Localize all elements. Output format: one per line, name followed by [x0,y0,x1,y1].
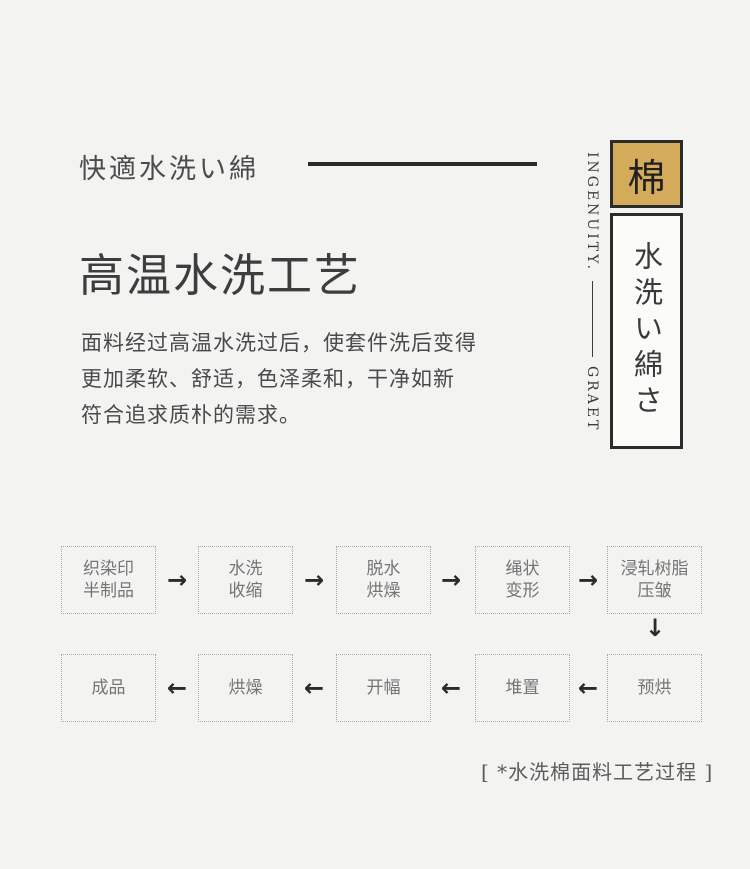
vertical-title: 水洗い綿さ [626,241,668,421]
flow-step-line: 浸轧树脂 [621,558,689,580]
flow-step-dry: 烘燥 [198,654,293,722]
description-paragraph: 面料经过高温水洗过后，使套件洗后变得 更加柔软、舒适，色泽柔和，干净如新 符合追… [81,325,477,433]
flow-step-line: 烘燥 [229,677,263,699]
flow-step-dehydrate-dry: 脱水 烘燥 [336,546,431,614]
section-title: 高温水洗工艺 [79,239,361,304]
ingenuity-label: INGENUITY. [584,152,600,272]
flow-step-line: 半制品 [83,580,134,602]
flow-step-line: 变形 [506,580,540,602]
description-line: 更加柔软、舒适，色泽柔和，干净如新 [81,361,477,397]
flow-step-open-width: 开幅 [336,654,431,722]
subtitle-japanese: 快適水洗い綿 [79,147,259,186]
flow-step-line: 成品 [92,677,126,699]
flow-step-line: 收缩 [229,580,263,602]
flow-arrow-right-4: → [575,566,601,594]
description-line: 符合追求质朴的需求。 [81,397,477,433]
flow-step-line: 脱水 [367,558,401,580]
flow-step-line: 水洗 [229,558,263,580]
description-line: 面料经过高温水洗过后，使套件洗后变得 [81,325,477,361]
separator-line [592,281,593,357]
flow-step-line: 绳状 [506,558,540,580]
flow-step-line: 烘燥 [367,580,401,602]
product-description-section: 快適水洗い綿 高温水洗工艺 面料经过高温水洗过后，使套件洗后变得 更加柔软、舒适… [0,0,750,869]
flow-arrow-left-1: ← [164,674,190,702]
flow-step-resin-press: 浸轧树脂 压皱 [607,546,702,614]
side-vertical-caption: INGENUITY. GRAET [578,152,606,432]
flow-step-wash-shrink: 水洗 收缩 [198,546,293,614]
cotton-badge: 棉 [610,140,683,208]
graet-label: GRAET [584,366,600,432]
flow-arrow-right-2: → [301,566,327,594]
flow-step-semi-product: 织染印 半制品 [61,546,156,614]
flow-step-line: 预烘 [638,677,672,699]
flow-step-pre-bake: 预烘 [607,654,702,722]
flow-step-rope-deform: 绳状 变形 [475,546,570,614]
vertical-title-box: 水洗い綿さ [610,213,683,449]
flow-arrow-left-3: ← [438,674,464,702]
flow-step-finished-product: 成品 [61,654,156,722]
flow-arrow-right-1: → [164,566,190,594]
flow-arrow-down: ↓ [642,614,668,642]
flow-arrow-right-3: → [438,566,464,594]
flow-step-line: 堆置 [506,677,540,699]
flow-step-line: 开幅 [367,677,401,699]
flow-step-line: 织染印 [83,558,134,580]
flow-arrow-left-4: ← [575,674,601,702]
cotton-badge-char: 棉 [627,147,665,202]
flow-caption: [ *水洗棉面料工艺过程 ] [481,756,713,785]
flow-arrow-left-2: ← [301,674,327,702]
flow-step-stack: 堆置 [475,654,570,722]
flow-step-line: 压皱 [638,580,672,602]
header-rule [308,162,537,166]
